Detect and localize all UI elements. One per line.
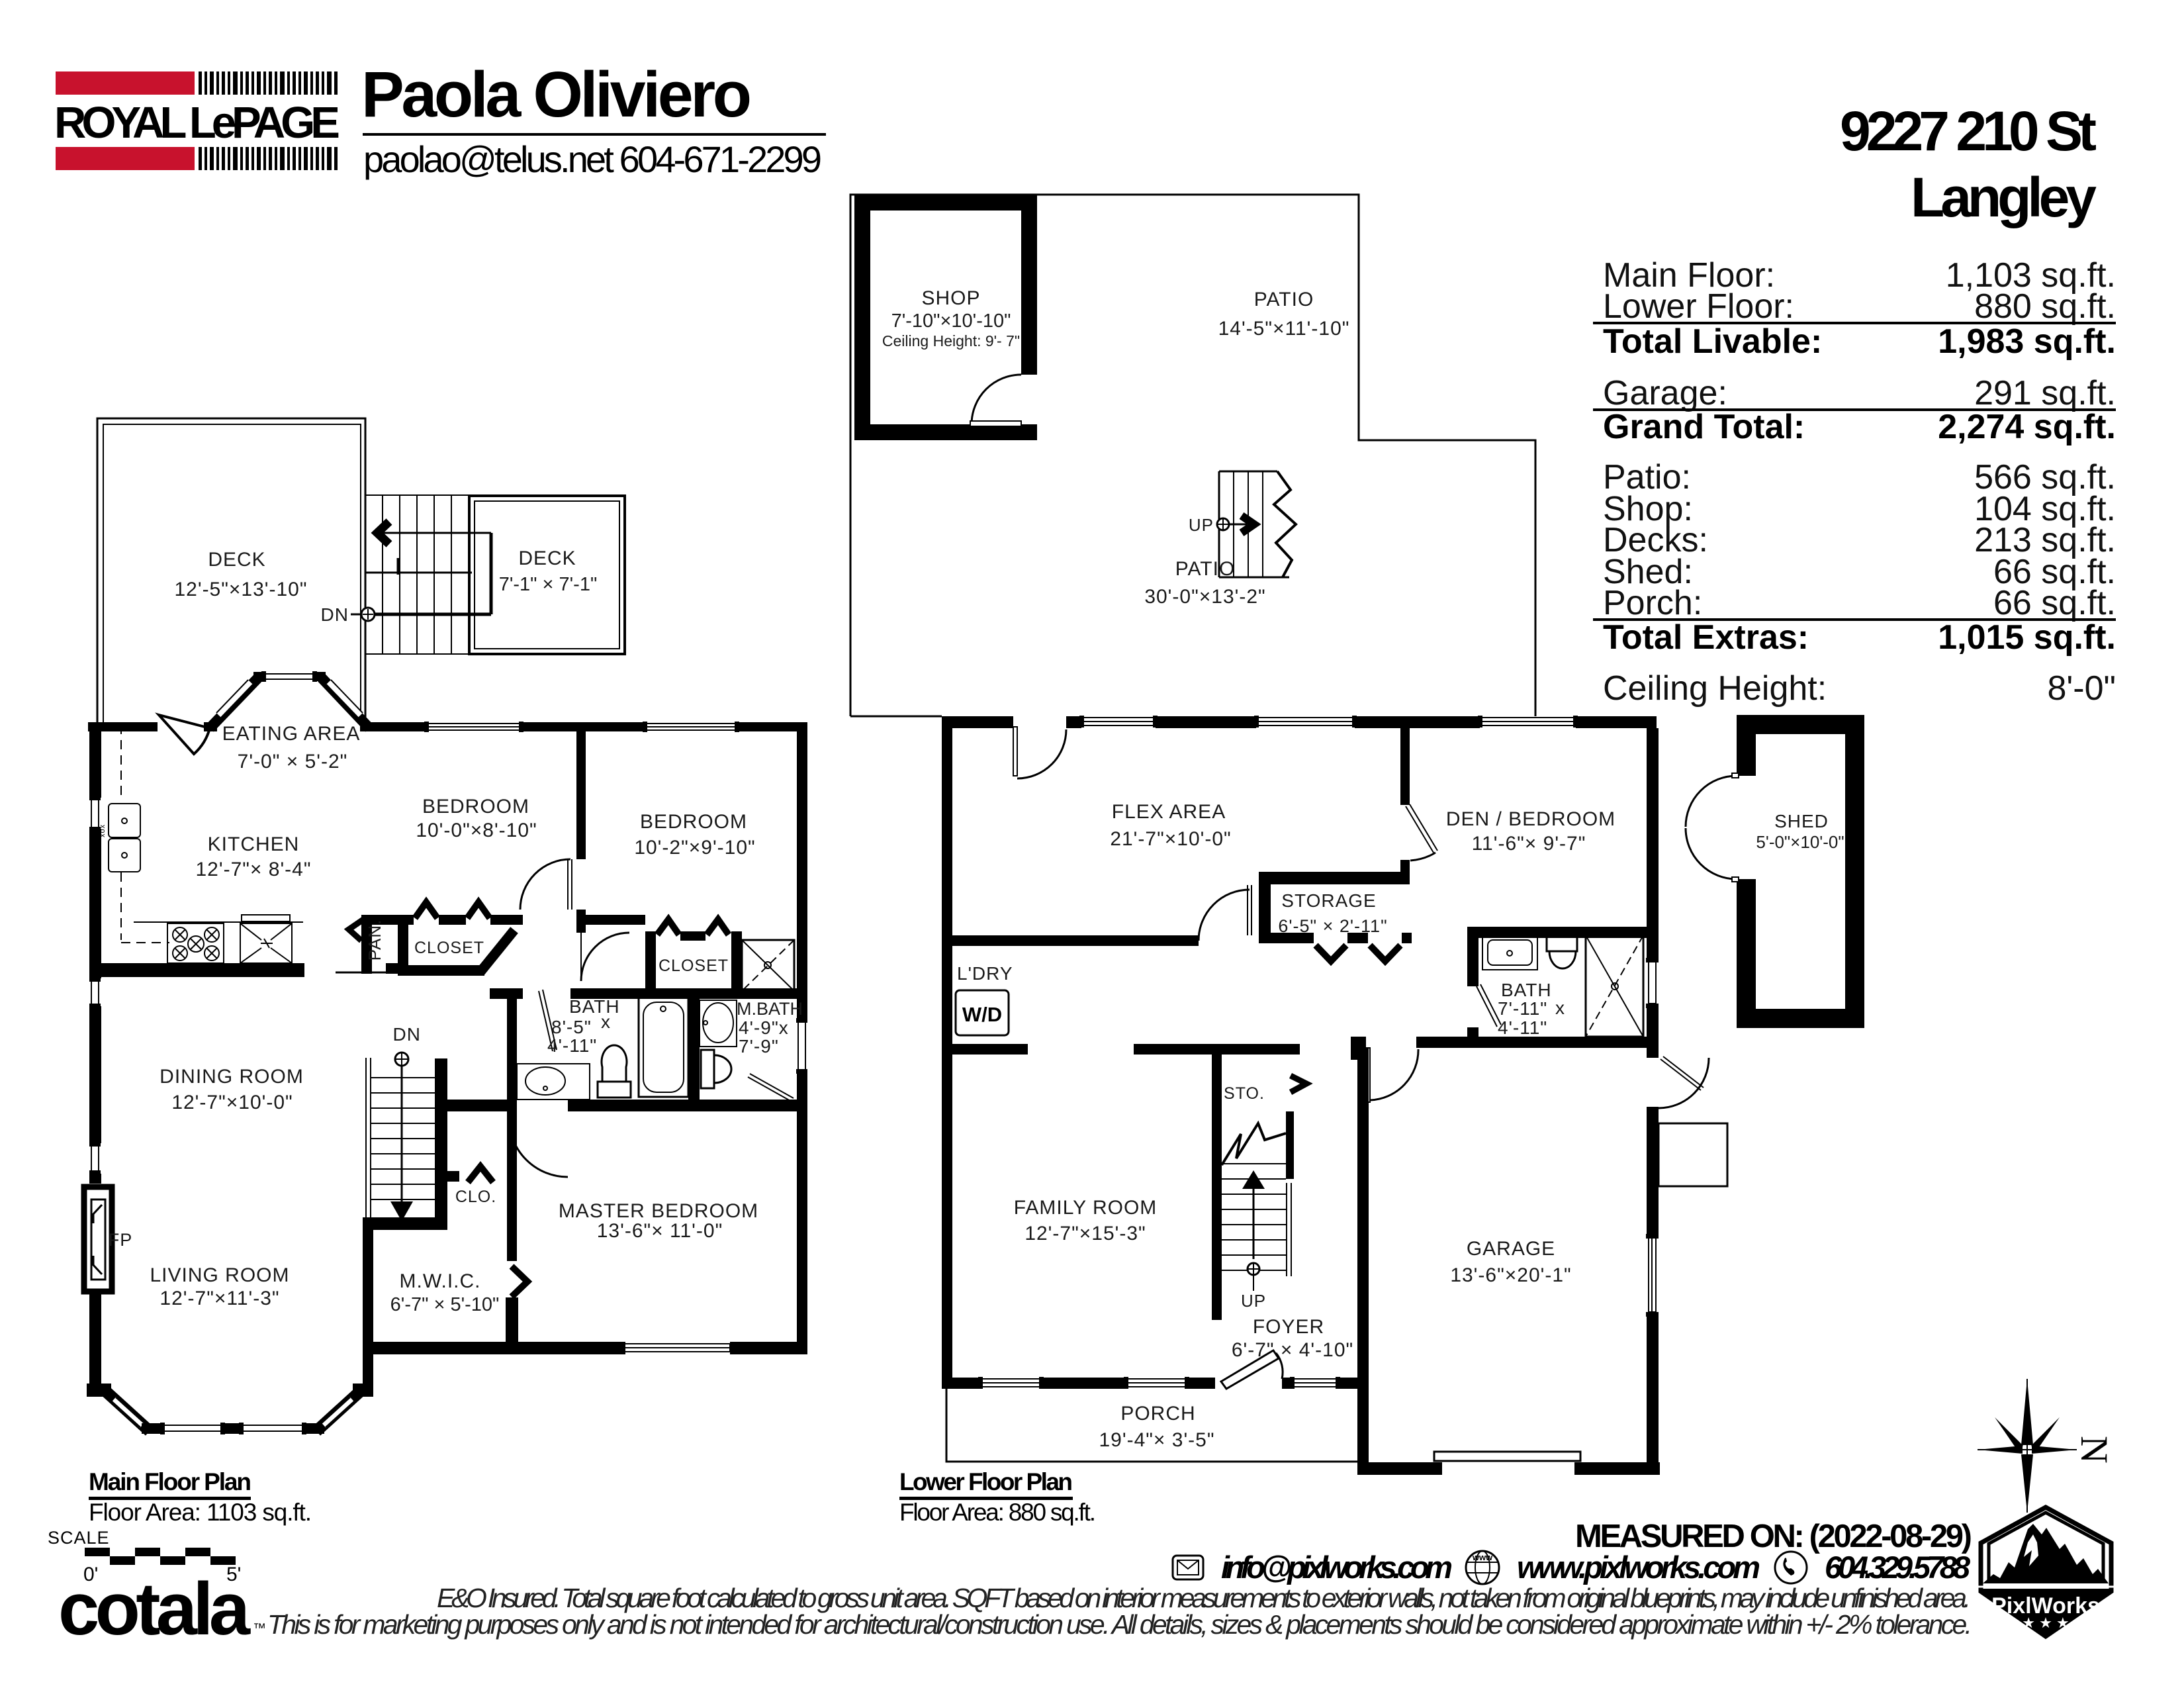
svg-text:Main Floor Plan: Main Floor Plan [89,1468,251,1495]
svg-text:14'-5"×11'-10": 14'-5"×11'-10" [1218,318,1350,340]
svg-text:DN: DN [321,604,349,625]
svg-text:★ ★ ★: ★ ★ ★ [2022,1615,2069,1631]
svg-text:BEDROOM: BEDROOM [422,796,529,818]
svg-text:PORCH: PORCH [1120,1403,1195,1425]
svg-text:291 sq.ft.: 291 sq.ft. [1974,374,2116,412]
svg-text:6'-5" × 2'-11": 6'-5" × 2'-11" [1278,916,1387,936]
svg-text:1,983 sq.ft.: 1,983 sq.ft. [1938,322,2116,361]
svg-text:9227 210 St: 9227 210 St [1840,100,2097,162]
svg-text:DN: DN [393,1024,421,1045]
svg-text:SHOP: SHOP [921,287,980,309]
svg-text:21'-7"×10'-0": 21'-7"×10'-0" [1110,828,1231,850]
svg-text:PATIO: PATIO [1254,289,1314,310]
svg-text:GARAGE: GARAGE [1467,1238,1555,1260]
svg-text:13'-6"× 11'-0": 13'-6"× 11'-0" [597,1220,723,1242]
svg-text:6'-7" × 4'-10": 6'-7" × 4'-10" [1232,1339,1353,1361]
svg-text:10'-2"×9'-10": 10'-2"×9'-10" [634,837,755,859]
svg-text:LIVING ROOM: LIVING ROOM [150,1264,289,1286]
svg-text:Ceiling Height: 9'- 7": Ceiling Height: 9'- 7" [882,332,1020,350]
svg-text:BATH: BATH [569,996,620,1017]
svg-text:Grand Total:: Grand Total: [1603,408,1805,446]
svg-text:30'-0"×13'-2": 30'-0"×13'-2" [1144,586,1265,608]
svg-text:Floor Area: 1103 sq.ft.: Floor Area: 1103 sq.ft. [89,1499,312,1526]
svg-text:www: www [1472,1552,1493,1562]
svg-text:8'-5": 8'-5" [551,1017,592,1037]
svg-text:DECK: DECK [518,547,576,569]
svg-text:8'-0": 8'-0" [2047,669,2116,708]
svg-text:M.BATH: M.BATH [737,999,803,1019]
svg-text:M.W.I.C.: M.W.I.C. [400,1270,481,1292]
svg-text:CLOSET: CLOSET [414,939,484,957]
svg-text:UP: UP [1189,515,1214,535]
svg-text:KITCHEN: KITCHEN [208,833,300,855]
svg-text:12'-7"×10'-0": 12'-7"×10'-0" [171,1092,293,1113]
svg-text:UP: UP [1241,1291,1266,1311]
svg-text:7'-9": 7'-9" [739,1036,779,1056]
svg-text:7'-11": 7'-11" [1498,998,1547,1019]
svg-text:12'-7"×15'-3": 12'-7"×15'-3" [1024,1223,1146,1244]
svg-text:L'DRY: L'DRY [957,963,1013,984]
svg-text:cotala: cotala [58,1568,251,1650]
svg-text:PATIO: PATIO [1175,558,1236,580]
svg-text:11'-6"× 9'-7": 11'-6"× 9'-7" [1472,833,1586,855]
svg-text:info@pixlworks.com: info@pixlworks.com [1221,1550,1453,1585]
svg-text:BEDROOM: BEDROOM [640,811,747,833]
svg-text:7'-1" × 7'-1": 7'-1" × 7'-1" [499,574,598,595]
svg-text:www.pixlworks.com: www.pixlworks.com [1517,1550,1760,1585]
svg-text:19'-4"× 3'-5": 19'-4"× 3'-5" [1099,1429,1214,1451]
svg-text:880 sq.ft.: 880 sq.ft. [1974,287,2116,326]
svg-text:This is for marketing purposes: This is for marketing purposes only and … [267,1609,1972,1640]
svg-text:FAMILY ROOM: FAMILY ROOM [1014,1197,1158,1219]
svg-text:2,274 sq.ft.: 2,274 sq.ft. [1938,408,2116,446]
svg-text:13'-6"×20'-1": 13'-6"×20'-1" [1450,1264,1571,1286]
svg-text:DEN / BEDROOM: DEN / BEDROOM [1446,808,1615,830]
svg-text:Ceiling Height:: Ceiling Height: [1603,669,1827,708]
svg-text:SCALE: SCALE [48,1528,110,1548]
svg-text:FP: FP [109,1230,133,1250]
svg-text:ROYAL LePAGE: ROYAL LePAGE [54,98,339,148]
svg-text:paolao@telus.net 604-671-2299: paolao@telus.net 604-671-2299 [363,138,823,180]
svg-text:66 sq.ft.: 66 sq.ft. [1993,584,2116,622]
svg-text:4'-11": 4'-11" [1498,1017,1547,1038]
svg-text:7'-10"×10'-10": 7'-10"×10'-10" [891,310,1011,332]
svg-text:W/D: W/D [962,1003,1002,1026]
svg-text:EATING AREA: EATING AREA [222,723,361,745]
svg-text:Porch:: Porch: [1603,584,1702,622]
svg-text:12'-7"×11'-3": 12'-7"×11'-3" [159,1288,279,1309]
svg-text:STO.: STO. [1224,1084,1265,1103]
svg-text:xox: xox [99,824,107,837]
svg-text:604.329.5788: 604.329.5788 [1825,1550,1971,1585]
svg-text:4'-11": 4'-11" [547,1035,597,1056]
svg-text:MEASURED ON: (2022-08-29): MEASURED ON: (2022-08-29) [1575,1519,1972,1554]
svg-text:Total Extras:: Total Extras: [1603,618,1809,657]
svg-text:5'-0"×10'-0": 5'-0"×10'-0" [1756,832,1844,852]
svg-text:12'-5"×13'-10": 12'-5"×13'-10" [174,579,307,600]
svg-text:N: N [2073,1436,2116,1464]
svg-text:Floor Area: 880 sq.ft.: Floor Area: 880 sq.ft. [899,1499,1096,1526]
svg-text:FOYER: FOYER [1253,1316,1324,1338]
svg-text:STORAGE: STORAGE [1281,890,1376,911]
svg-text:6'-7" × 5'-10": 6'-7" × 5'-10" [390,1294,500,1315]
svg-text:Lower Floor:: Lower Floor: [1603,287,1794,326]
svg-text:CLOSET: CLOSET [659,957,729,975]
svg-text:DINING ROOM: DINING ROOM [159,1066,304,1088]
svg-text:DECK: DECK [208,549,265,571]
svg-text:10'-0"×8'-10": 10'-0"×8'-10" [416,820,537,841]
svg-text:Paola Oliviero: Paola Oliviero [361,58,752,130]
svg-text:BATH: BATH [1501,980,1552,1000]
svg-text:Total Livable:: Total Livable: [1603,322,1822,361]
svg-text:SHED: SHED [1774,811,1829,831]
svg-text:™: ™ [253,1621,266,1636]
svg-text:CLO.: CLO. [455,1188,496,1206]
svg-text:PAN.: PAN. [365,919,385,961]
svg-text:7'-0" × 5'-2": 7'-0" × 5'-2" [238,751,348,773]
svg-text:FLEX AREA: FLEX AREA [1112,801,1226,823]
svg-text:Lower Floor Plan: Lower Floor Plan [899,1468,1073,1495]
svg-text:4'-9"x: 4'-9"x [739,1017,789,1038]
svg-text:1,015 sq.ft.: 1,015 sq.ft. [1938,618,2116,657]
svg-text:x: x [601,1011,611,1032]
svg-text:x: x [1555,998,1565,1018]
svg-text:Langley: Langley [1911,166,2097,228]
svg-text:MASTER BEDROOM: MASTER BEDROOM [559,1200,758,1222]
svg-text:12'-7"× 8'-4": 12'-7"× 8'-4" [195,859,311,880]
svg-text:Garage:: Garage: [1603,374,1727,412]
